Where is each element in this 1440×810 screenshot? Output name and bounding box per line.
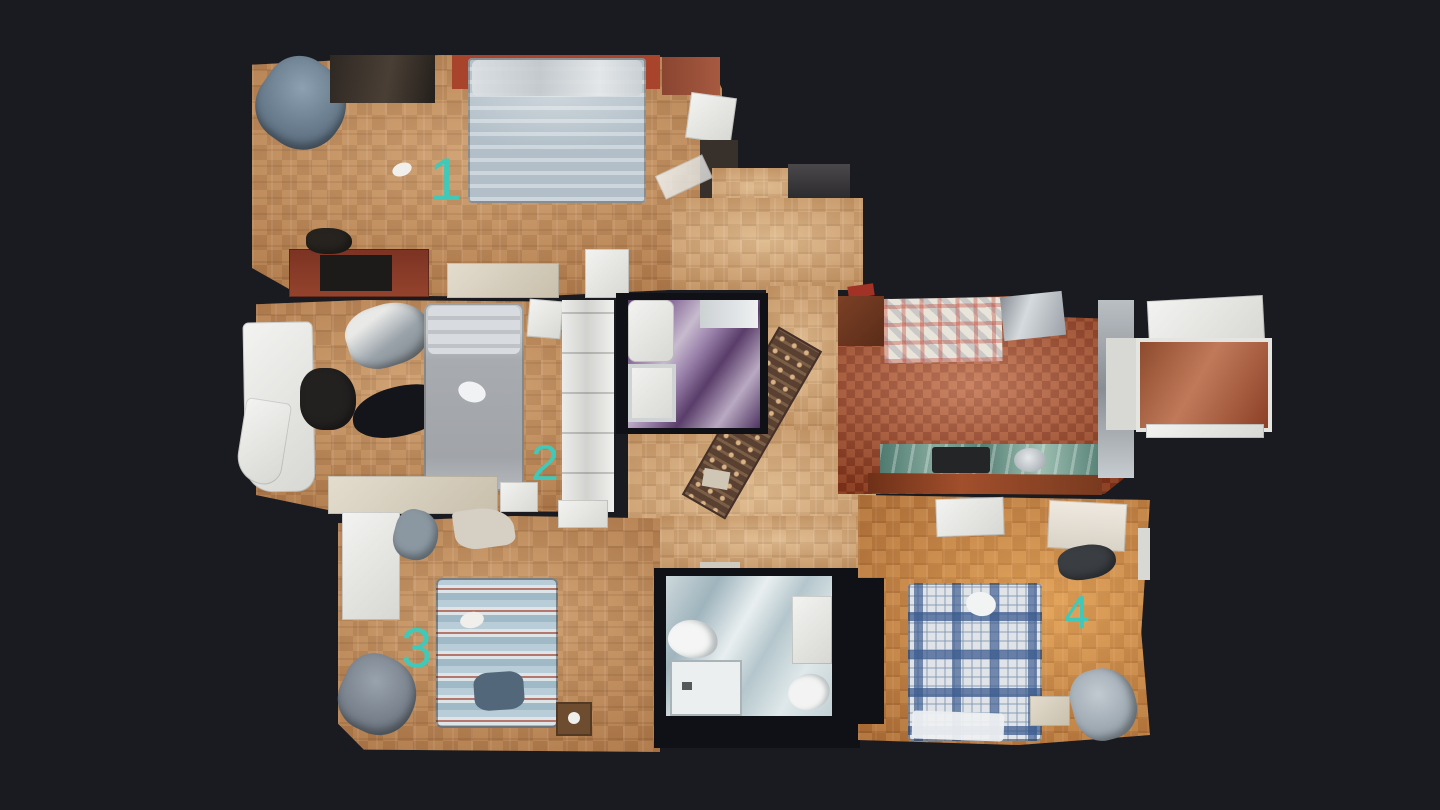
- floorplan-viewer: 1 2 3 4: [0, 0, 1440, 810]
- chair-white-2: [526, 299, 563, 340]
- desk-1-chair: [306, 228, 352, 254]
- corridor-room4-floor[interactable]: [660, 516, 882, 570]
- room-label-4[interactable]: 4: [1064, 589, 1090, 635]
- entry-cabinet: [788, 164, 850, 198]
- bed-1-pillows: [472, 60, 642, 96]
- wardrobe-2: [562, 300, 614, 512]
- room-label-3[interactable]: 3: [401, 620, 432, 676]
- balcony-top-wall: [1147, 295, 1265, 349]
- nightstand-4: [1030, 696, 1070, 726]
- entry-hall-floor[interactable]: [672, 198, 863, 290]
- kitchen-counter: [880, 444, 1108, 476]
- dresser-wood-1: [662, 57, 720, 95]
- kitchen-table: [883, 297, 1002, 363]
- cabinet-1: [585, 249, 629, 298]
- kitchen-counter-front: [868, 473, 1102, 495]
- closet-4: [856, 578, 884, 724]
- shelf-white-1: [685, 92, 737, 144]
- crate-3-cup: [568, 712, 580, 724]
- desk-3: [342, 512, 400, 620]
- vanity-2: [792, 596, 832, 664]
- wardrobe-dark-1: [330, 55, 435, 103]
- bed-2-pillows: [428, 306, 520, 354]
- shower-drain: [682, 682, 692, 690]
- bathtub: [628, 300, 674, 362]
- bed-4-sheet: [912, 710, 1005, 741]
- kitchen-sink: [1014, 448, 1046, 472]
- fridge: [1000, 291, 1066, 341]
- balcony-floor[interactable]: [1140, 342, 1268, 428]
- cooktop: [932, 447, 990, 473]
- room4-wall-highlight: [1138, 528, 1150, 580]
- room-label-2[interactable]: 2: [531, 438, 559, 488]
- shelf-3: [558, 500, 608, 528]
- bathroom-1-sink: [700, 300, 758, 328]
- balcony-sill: [1146, 424, 1264, 438]
- desk-1-monitor: [320, 255, 392, 291]
- office-chair-2: [300, 368, 356, 430]
- shower-tray-1: [628, 364, 676, 422]
- room-label-1[interactable]: 1: [429, 150, 462, 210]
- balcony-door-wall: [1106, 338, 1140, 430]
- bed-3-pillow: [473, 670, 526, 711]
- shower-tray-2: [670, 660, 742, 716]
- bedding-4: [935, 497, 1004, 537]
- bench-1: [447, 263, 559, 298]
- kitchen-cabinet-left: [838, 296, 884, 346]
